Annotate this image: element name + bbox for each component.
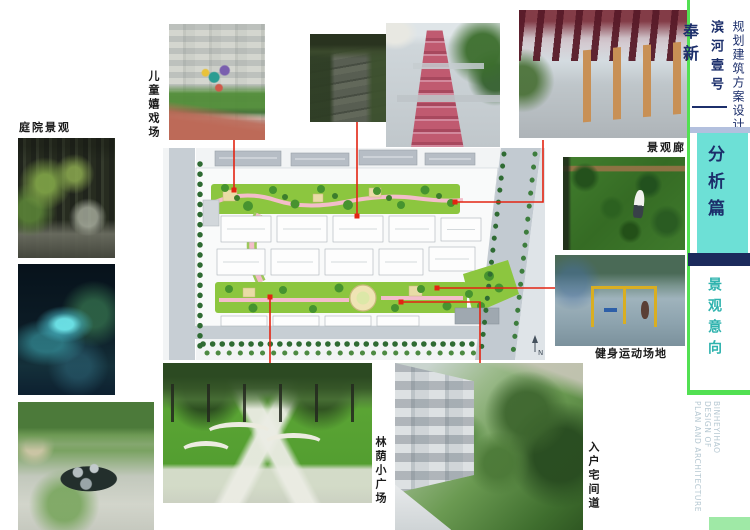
project-name-title: 滨河壹号 xyxy=(706,20,725,138)
person-figure xyxy=(632,190,645,219)
person-figure xyxy=(641,301,649,319)
label-courtyard: 庭院景观 xyxy=(19,119,71,135)
project-type-title: 规划建筑方案设计 xyxy=(730,20,747,138)
label-fitness-area: 健身运动场地 xyxy=(595,345,667,361)
photo-stone-path xyxy=(310,34,392,122)
photo-fountain-plaza xyxy=(18,402,154,530)
footer-text-line1: PLAN AND ARCHITECTURE xyxy=(693,401,702,512)
subsection-title: 景观意向 xyxy=(704,277,724,361)
project-location-title: 奉新 xyxy=(677,23,701,138)
label-shaded-plaza: 林荫小广场 xyxy=(372,436,388,506)
photo-shaded-plaza xyxy=(163,363,372,503)
site-master-plan: N xyxy=(163,148,545,360)
photo-courtyard-landscape xyxy=(18,138,115,258)
label-children-playground: 儿童嬉戏场 xyxy=(145,70,161,140)
title-underline xyxy=(692,106,727,108)
photo-children-playground xyxy=(169,24,265,140)
section-tab-analysis: 分析篇 xyxy=(697,133,748,253)
walkway-road-shape xyxy=(411,30,463,147)
footer-green-line xyxy=(687,390,750,395)
navy-divider-bar xyxy=(688,253,750,266)
photo-vine-wall xyxy=(563,157,685,250)
title-block: 规划建筑方案设计 滨河壹号 奉新 xyxy=(673,20,747,138)
stone-bench xyxy=(263,433,323,455)
walkway-paving-band xyxy=(397,95,500,102)
photo-entry-path xyxy=(395,363,583,530)
footer-text-line2: DESIGN OF xyxy=(703,401,712,448)
footer-text-line3: BINHEYIHAO xyxy=(712,401,721,454)
fitness-seat xyxy=(604,308,617,313)
photo-pink-walkway xyxy=(386,23,500,147)
section-title: 分析篇 xyxy=(702,145,727,226)
presentation-board: { "title_block": { "project_type": "规划建筑… xyxy=(0,0,750,530)
tree-trunks xyxy=(171,384,363,422)
photo-fitness-area xyxy=(555,255,685,346)
label-landscape-corridor: 景观廊 xyxy=(647,139,686,155)
fitness-pole xyxy=(623,286,626,324)
north-label: N xyxy=(538,349,543,357)
photo-pergola-corridor xyxy=(519,10,687,138)
stone-bench xyxy=(180,441,232,463)
walkway-paving-band xyxy=(413,63,484,69)
pergola-columns xyxy=(583,41,684,121)
photo-night-garden xyxy=(18,264,115,395)
label-entry-path: 入户宅间道 xyxy=(585,441,601,511)
bottom-green-bar xyxy=(709,517,750,530)
townhouse-facades xyxy=(395,363,474,493)
